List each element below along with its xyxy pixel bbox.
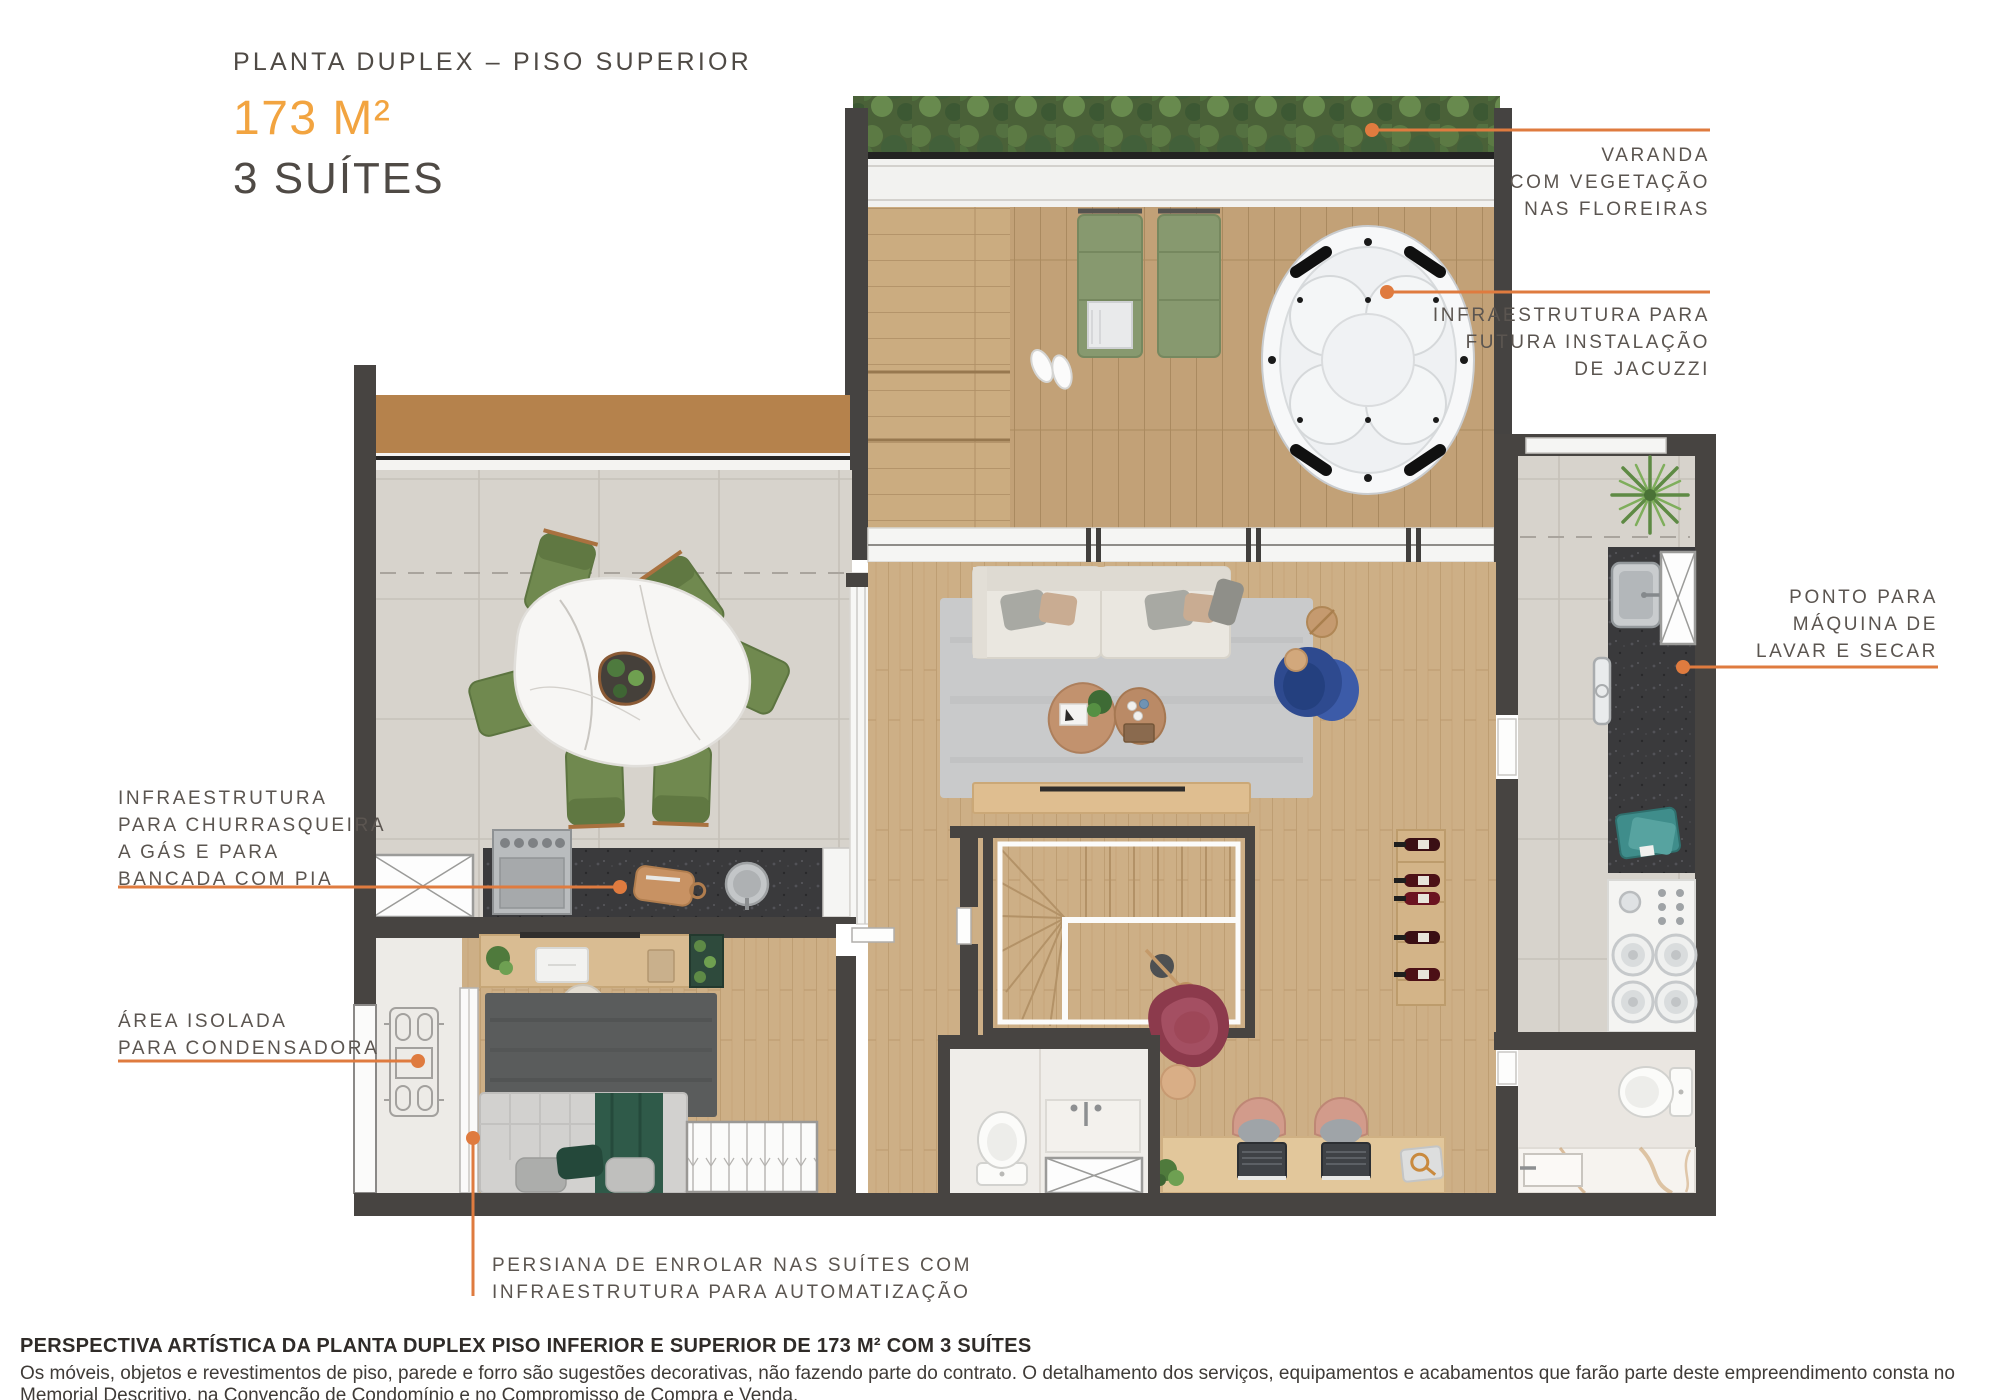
annotation-line: PARA CHURRASQUEIRA <box>118 816 386 835</box>
hedge-floreiras <box>853 96 1500 154</box>
annotation-line: PARA CONDENSADORA <box>118 1039 379 1058</box>
planter-band <box>376 395 850 453</box>
annotation-line: BANCADA COM PIA <box>118 870 386 889</box>
wine-rack <box>1394 830 1445 1005</box>
annotation-lavanderia: PONTO PARA MÁQUINA DE LAVAR E SECAR <box>1756 588 1938 661</box>
marble-vanity <box>1518 1148 1695 1193</box>
suite-desk <box>480 935 690 987</box>
annotation-persiana: PERSIANA DE ENROLAR NAS SUÍTES COM INFRA… <box>492 1256 972 1302</box>
annotation-line: COM VEGETAÇÃO <box>1510 173 1710 192</box>
annotation-condensadora: ÁREA ISOLADA PARA CONDENSADORA <box>118 1012 379 1058</box>
basin <box>1524 1154 1582 1186</box>
annotation-varanda: VARANDA COM VEGETAÇÃO NAS FLOREIRAS <box>1510 146 1710 219</box>
bed <box>480 1093 687 1193</box>
annotation-line: INFRAESTRUTURA <box>118 789 386 808</box>
leader-dot-condensadora <box>411 1054 425 1068</box>
palm-plant <box>1612 457 1688 533</box>
laptop-1 <box>1238 1143 1286 1180</box>
kitchen-laundry-wing <box>1494 434 1716 1216</box>
footer-title: PERSPECTIVA ARTÍSTICA DA PLANTA DUPLEX P… <box>20 1335 1990 1358</box>
leader-dot-jacuzzi <box>1380 285 1394 299</box>
annotation-line: NAS FLOREIRAS <box>1524 200 1710 219</box>
desk-chair-1 <box>1233 1098 1285 1145</box>
footer: PERSPECTIVA ARTÍSTICA DA PLANTA DUPLEX P… <box>20 1335 1990 1400</box>
leader-dot-churrasqueira <box>613 880 627 894</box>
annotation-line: INFRAESTRUTURA PARA AUTOMATIZAÇÃO <box>492 1283 972 1302</box>
shaft-box-laundry <box>1661 552 1695 644</box>
annotation-line: VARANDA <box>1601 146 1710 165</box>
terrace-dining <box>373 395 872 924</box>
laundry-sink <box>1612 563 1660 627</box>
annotation-line: ÁREA ISOLADA <box>118 1012 379 1031</box>
bathroom-suite <box>938 1035 1160 1193</box>
vanity <box>1046 1100 1140 1152</box>
annotation-line: LAVAR E SECAR <box>1756 642 1938 661</box>
annotation-line: PONTO PARA <box>1789 588 1938 607</box>
tv-sideboard <box>973 783 1250 813</box>
footer-disclaimer: Os móveis, objetos e revestimentos de pi… <box>20 1363 1990 1400</box>
leader-dot-lavanderia <box>1676 660 1690 674</box>
pillow <box>606 1158 654 1192</box>
towel <box>1088 302 1132 348</box>
annotation-line: A GÁS E PARA <box>118 843 386 862</box>
plan-kicker: PLANTA DUPLEX – PISO SUPERIOR <box>233 48 752 77</box>
toilet-2 <box>1619 1067 1692 1117</box>
plan-area: 173 M² <box>233 91 752 146</box>
lounger-1 <box>1078 211 1142 357</box>
grill <box>493 830 571 914</box>
plan-suites: 3 SUÍTES <box>233 154 752 204</box>
table-planter <box>600 653 654 704</box>
annotation-churrasqueira: INFRAESTRUTURA PARA CHURRASQUEIRA A GÁS … <box>118 789 386 889</box>
balcony-varanda <box>845 96 1512 560</box>
leader-dot-varanda <box>1365 123 1379 137</box>
door-leaf <box>852 928 894 942</box>
pillow-green <box>555 1144 604 1181</box>
leader-dot-persiana <box>466 1131 480 1145</box>
wardrobe <box>687 1122 817 1192</box>
deck-bench-steps <box>868 207 1010 528</box>
cooktop <box>1608 880 1696 1032</box>
desk-tray <box>1400 1146 1443 1182</box>
door-leaf <box>957 908 971 944</box>
floor-plan-page: PLANTA DUPLEX – PISO SUPERIOR 173 M² 3 S… <box>0 0 2000 1400</box>
planter-edge <box>853 152 1500 159</box>
toilet <box>977 1112 1027 1185</box>
annotation-line: MÁQUINA DE <box>1793 615 1938 634</box>
title-block: PLANTA DUPLEX – PISO SUPERIOR 173 M² 3 S… <box>233 48 752 204</box>
sofa <box>973 567 1246 658</box>
annotation-line: FUTURA INSTALAÇÃO <box>1466 333 1710 352</box>
lounger-2 <box>1158 211 1220 357</box>
ottoman <box>1161 1065 1195 1099</box>
annotation-jacuzzi: INFRAESTRUTURA PARA FUTURA INSTALAÇÃO DE… <box>1433 306 1710 379</box>
desk-chair-2 <box>1315 1098 1367 1145</box>
annotation-line: INFRAESTRUTURA PARA <box>1433 306 1710 325</box>
shaft-box-bathroom <box>1046 1158 1142 1193</box>
teal-towels <box>1615 807 1681 859</box>
annotation-line: DE JACUZZI <box>1574 360 1710 379</box>
laptop-2 <box>1322 1143 1370 1180</box>
annotation-line: PERSIANA DE ENROLAR NAS SUÍTES COM <box>492 1256 972 1275</box>
